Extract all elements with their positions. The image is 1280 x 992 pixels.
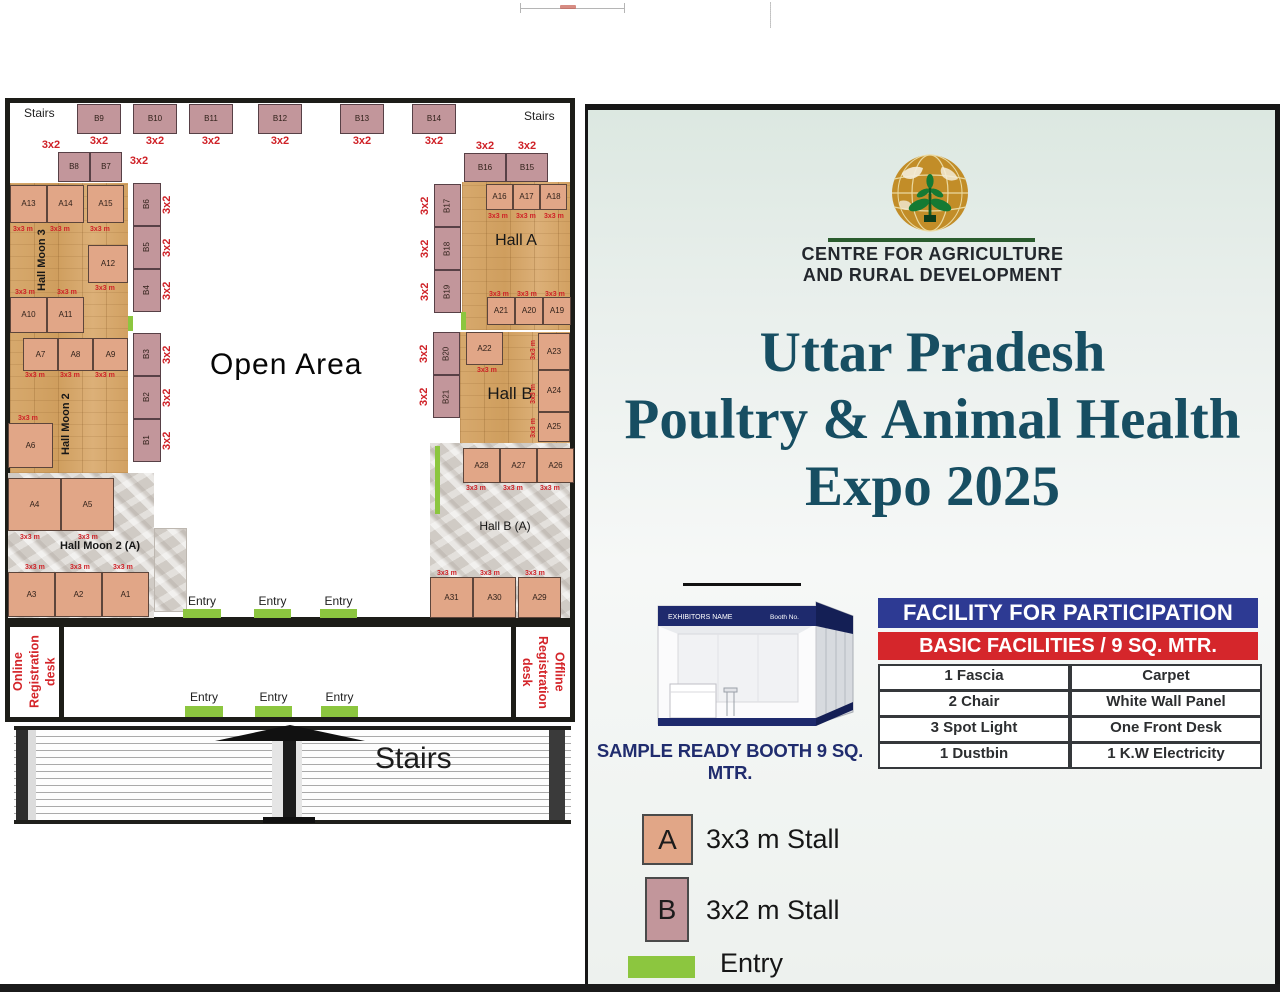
dim-label-3x3m: 3x3 m [15, 289, 35, 296]
booth-exhibitor-name: EXHIBITORS NAME [668, 614, 733, 621]
facility-rows: 1 FasciaCarpet2 ChairWhite Wall Panel3 S… [878, 598, 1258, 770]
dim-label-3x3m-v: 3x3 m [530, 418, 537, 438]
legend-entry-bar [628, 956, 695, 978]
hall-moon2-label: Hall Moon 2 [60, 380, 72, 468]
dim-label-3x2: 3x2 [412, 136, 456, 147]
dim-label-3x2-v: 3x2 [420, 189, 431, 222]
offline-registration-desk: Offline Registration desk [511, 627, 570, 717]
dim-label-3x3m: 3x3 m [540, 485, 560, 492]
offline-desk-line1: Offline [551, 629, 567, 715]
dim-label-3x3m: 3x3 m [477, 367, 497, 374]
booth-caption: SAMPLE READY BOOTH 9 SQ. MTR. [585, 740, 875, 784]
dim-label-3x3m: 3x3 m [78, 534, 98, 541]
stairs-label-top-right: Stairs [524, 109, 555, 123]
legend-b-label: 3x2 m Stall [706, 897, 906, 924]
stall-a18: A18 [540, 184, 567, 210]
entry-bar [320, 609, 357, 618]
dim-label-3x3m: 3x3 m [57, 289, 77, 296]
dim-label-3x2: 3x2 [464, 141, 506, 152]
stall-b19: B19 [434, 270, 461, 313]
dim-label-3x3m: 3x3 m [95, 285, 115, 292]
entry-bar [254, 609, 291, 618]
dim-label-3x2-v: 3x2 [420, 232, 431, 265]
stall-b4: B4 [133, 269, 161, 312]
stall-a17: A17 [513, 184, 540, 210]
event-title-line3: Expo 2025 [585, 458, 1280, 515]
stall-b6: B6 [133, 183, 161, 226]
stairs-arrow [215, 723, 365, 743]
org-name-line2: AND RURAL DEVELOPMENT [700, 266, 1165, 284]
dim-label-3x2: 3x2 [36, 140, 66, 151]
expo-floor-plan-poster: Stairs Stairs Open Area Hall Moon 3 Hall… [0, 0, 1280, 992]
booth-number-label: Booth No. [770, 614, 799, 621]
hall-a-label: Hall A [462, 232, 570, 250]
dim-label-3x3m: 3x3 m [25, 372, 45, 379]
stairs-wall-left [16, 730, 28, 820]
stall-b20: B20 [433, 332, 460, 375]
dim-label-3x2-v: 3x2 [162, 338, 173, 371]
stall-a13: A13 [10, 185, 47, 223]
entry-label: Entry [321, 691, 358, 703]
open-area-label: Open Area [210, 348, 400, 382]
dim-label-3x3m: 3x3 m [90, 226, 110, 233]
online-registration-desk: Online Registration desk [10, 627, 64, 717]
stairs-wall-left2 [28, 730, 36, 820]
dim-label-3x3m: 3x3 m [516, 213, 536, 220]
stall-b21: B21 [433, 375, 460, 418]
stall-b1: B1 [133, 419, 161, 462]
entry-label: Entry [255, 691, 292, 703]
facility-cell: White Wall Panel [1070, 690, 1262, 717]
org-name-line1: CENTRE FOR AGRICULTURE [700, 245, 1165, 263]
dim-label-3x2: 3x2 [124, 156, 154, 167]
legend-entry-label: Entry [720, 950, 840, 977]
entry-label: Entry [185, 691, 223, 703]
stall-a16: A16 [486, 184, 513, 210]
stall-a3: A3 [8, 572, 55, 617]
stall-a21: A21 [487, 297, 515, 325]
dim-label-3x3m: 3x3 m [18, 415, 38, 422]
stall-a7: A7 [23, 338, 58, 371]
dim-label-3x3m: 3x3 m [437, 570, 457, 577]
dim-label-3x3m-v: 3x3 m [530, 340, 537, 360]
entry-bar [183, 609, 221, 618]
stall-a8: A8 [58, 338, 93, 371]
facility-cell: Carpet [1070, 664, 1262, 691]
facility-cell: 1 Fascia [878, 664, 1070, 691]
dim-label-3x3m: 3x3 m [13, 226, 33, 233]
dim-label-3x2-v: 3x2 [162, 381, 173, 414]
dim-label-3x3m: 3x3 m [113, 564, 133, 571]
dim-label-3x3m: 3x3 m [503, 485, 523, 492]
dim-label-3x3m: 3x3 m [544, 213, 564, 220]
stall-a15: A15 [87, 185, 124, 223]
dim-label-3x3m: 3x3 m [95, 372, 115, 379]
dim-label-3x2-v: 3x2 [162, 188, 173, 221]
legend-b-letter: B [658, 894, 677, 926]
dim-label-3x3m: 3x3 m [60, 372, 80, 379]
dim-label-3x3m: 3x3 m [70, 564, 90, 571]
dim-label-3x2-v: 3x2 [162, 274, 173, 307]
facility-cell: 1 K.W Electricity [1070, 742, 1262, 769]
dim-label-3x3m: 3x3 m [545, 291, 565, 298]
stall-a27: A27 [500, 448, 537, 483]
facility-cell: 1 Dustbin [878, 742, 1070, 769]
event-title-line2: Poultry & Animal Health [585, 391, 1280, 448]
stall-b7: B7 [90, 152, 122, 182]
hall-ba-label: Hall B (A) [450, 519, 560, 533]
dim-label-3x2: 3x2 [258, 136, 302, 147]
dim-label-3x2: 3x2 [506, 141, 548, 152]
stall-a19: A19 [543, 297, 571, 325]
dim-label-3x3m: 3x3 m [466, 485, 486, 492]
stall-b14: B14 [412, 104, 456, 134]
stall-b12: B12 [258, 104, 302, 134]
stall-a23: A23 [538, 333, 570, 370]
facility-cell: One Front Desk [1070, 716, 1262, 743]
stall-a26: A26 [537, 448, 574, 483]
stall-a30: A30 [473, 577, 516, 618]
dim-label-3x2: 3x2 [340, 136, 384, 147]
stall-a29: A29 [518, 577, 561, 618]
facility-cell: 3 Spot Light [878, 716, 1070, 743]
entry-bar [321, 706, 358, 717]
dim-label-3x3m: 3x3 m [489, 291, 509, 298]
hall-moon3-label: Hall Moon 3 [36, 216, 48, 304]
dim-label-3x2-v: 3x2 [420, 275, 431, 308]
stall-a11: A11 [47, 297, 84, 333]
entry-gap [435, 446, 440, 514]
event-title-line1: Uttar Pradesh [585, 324, 1280, 381]
dim-label-3x2: 3x2 [133, 136, 177, 147]
stall-b18: B18 [434, 227, 461, 270]
online-desk-line1: Online [10, 629, 26, 715]
stairs-column-foot [263, 817, 315, 823]
dim-label-3x2-v: 3x2 [162, 424, 173, 457]
stall-b16: B16 [464, 153, 506, 182]
stall-b15: B15 [506, 153, 548, 182]
stairs-label-bottom: Stairs [375, 742, 452, 776]
entry-label: Entry [320, 595, 357, 607]
dim-label-3x3m: 3x3 m [25, 564, 45, 571]
entry-label: Entry [183, 595, 221, 607]
online-desk-line2: Registration desk [26, 629, 59, 715]
stall-a25: A25 [538, 412, 570, 442]
dim-label-3x3m: 3x3 m [480, 570, 500, 577]
stall-a31: A31 [430, 577, 473, 618]
booth-top-rule [683, 583, 801, 586]
stall-b10: B10 [133, 104, 177, 134]
stall-a9: A9 [93, 338, 128, 371]
sample-booth-image: EXHIBITORS NAME Booth No. [648, 592, 863, 740]
legend-a-letter: A [658, 824, 677, 856]
dim-label-3x3m: 3x3 m [517, 291, 537, 298]
hall-moon2a-label: Hall Moon 2 (A) [40, 540, 160, 552]
legend-a-label: 3x3 m Stall [706, 826, 906, 853]
logo-underline [828, 238, 1035, 242]
dim-label-3x3m: 3x3 m [488, 213, 508, 220]
stall-a12: A12 [88, 245, 128, 283]
stall-b2: B2 [133, 376, 161, 419]
entry-label: Entry [254, 595, 291, 607]
dim-label-3x3m: 3x3 m [525, 570, 545, 577]
facility-cell: 2 Chair [878, 690, 1070, 717]
dim-label-3x2-v: 3x2 [419, 337, 430, 370]
bottom-border-bar [0, 984, 1280, 992]
stairs-label-top-left: Stairs [24, 106, 55, 120]
stall-a10: A10 [10, 297, 47, 333]
dim-label-3x2-v: 3x2 [162, 231, 173, 264]
stall-b11: B11 [189, 104, 233, 134]
stall-a6: A6 [8, 423, 53, 468]
dim-label-3x2-v: 3x2 [419, 380, 430, 413]
stall-b13: B13 [340, 104, 384, 134]
stall-a24: A24 [538, 370, 570, 412]
offline-desk-line2: Registration desk [519, 629, 552, 715]
dim-label-3x2: 3x2 [77, 136, 121, 147]
stall-a1: A1 [102, 572, 149, 617]
stall-b17: B17 [434, 184, 461, 227]
dim-label-3x2: 3x2 [189, 136, 233, 147]
entry-gap [461, 312, 466, 330]
entry-gap [128, 316, 133, 331]
stall-a4: A4 [8, 478, 61, 531]
facility-table: FACILITY FOR PARTICIPATION BASIC FACILIT… [878, 598, 1258, 770]
dim-label-3x3m: 3x3 m [20, 534, 40, 541]
globe-plant-logo [890, 153, 970, 233]
legend-b-swatch: B [645, 877, 689, 942]
stall-a5: A5 [61, 478, 114, 531]
dim-label-3x3m-v: 3x3 m [530, 384, 537, 404]
stall-a20: A20 [515, 297, 543, 325]
stall-a28: A28 [463, 448, 500, 483]
stall-a14: A14 [47, 185, 84, 223]
entry-bar [255, 706, 292, 717]
legend-a-swatch: A [642, 814, 693, 865]
stall-b5: B5 [133, 226, 161, 269]
entry-bar [185, 706, 223, 717]
stall-b8: B8 [58, 152, 90, 182]
stall-b3: B3 [133, 333, 161, 376]
stall-a22: A22 [466, 332, 503, 365]
dim-label-3x3m: 3x3 m [50, 226, 70, 233]
stall-b9: B9 [77, 104, 121, 134]
stall-a2: A2 [55, 572, 102, 617]
stairs-wall-right [549, 730, 565, 820]
